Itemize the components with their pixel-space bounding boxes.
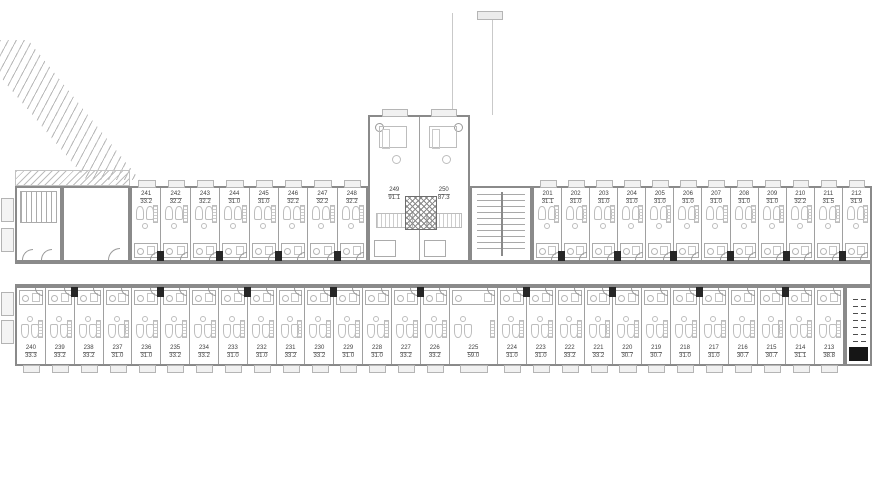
unit-label: 223 31.0 — [527, 345, 555, 360]
table-icon — [797, 223, 803, 229]
table-icon — [402, 316, 408, 322]
unit-number: 207 — [710, 191, 722, 199]
entrance-canopy — [15, 170, 130, 186]
wardrobe-icon — [610, 205, 615, 223]
unit-number: 211 — [823, 191, 835, 199]
unit-area: 31.0 — [731, 199, 758, 206]
unit-number: 238 — [83, 345, 95, 353]
bed-icon — [762, 324, 770, 338]
wardrobe-icon — [355, 320, 360, 338]
wing-bottom: 240 33.3 239 33.2 — [15, 286, 845, 366]
bed-icon — [396, 324, 404, 338]
unit-label: 206 31.0 — [674, 191, 701, 206]
table-icon — [85, 316, 91, 322]
unit-number: 245 — [258, 191, 270, 199]
bed-icon — [379, 126, 407, 148]
unit: 250 87.3 — [419, 117, 469, 260]
balcony — [1, 320, 14, 344]
unit-number: 250 — [438, 187, 450, 195]
unit: 203 31.0 — [589, 188, 617, 260]
unit-label: 215 30.7 — [758, 345, 786, 360]
unit: 248 32.2 — [337, 188, 366, 260]
site-line — [492, 13, 493, 115]
table-icon — [712, 223, 718, 229]
unit: 236 31.0 — [131, 288, 160, 364]
unit: 232 31.0 — [247, 288, 276, 364]
wardrobe-icon — [835, 205, 840, 223]
unit-label: 249 91.1 — [370, 187, 419, 202]
bed-icon — [763, 206, 771, 220]
bed-icon — [21, 324, 29, 338]
wardrobe-icon — [124, 320, 129, 338]
wardrobe-icon — [212, 205, 217, 223]
table-icon — [566, 316, 572, 322]
wardrobe-icon — [634, 320, 639, 338]
unit-area: 33.2 — [46, 353, 74, 360]
wardrobe-icon — [692, 320, 697, 338]
wardrobe-icon — [519, 320, 524, 338]
unit: 229 31.0 — [333, 288, 362, 364]
bed-icon — [338, 324, 346, 338]
unit-area: 32.2 — [161, 199, 189, 206]
unit-area: 33.2 — [305, 353, 333, 360]
unit-area: 31.0 — [104, 353, 132, 360]
bed-icon — [502, 324, 510, 338]
bed-icon — [617, 324, 625, 338]
unit-number: 223 — [535, 345, 547, 353]
unit-area: 33.2 — [421, 353, 449, 360]
unit-area: 31.0 — [759, 199, 786, 206]
bed-icon — [165, 324, 173, 338]
table-icon — [229, 316, 235, 322]
table-icon — [392, 155, 401, 164]
unit-label: 242 32.2 — [161, 191, 189, 206]
unit-label: 240 33.3 — [17, 345, 45, 360]
table-icon — [796, 316, 802, 322]
unit-number: 236 — [140, 345, 152, 353]
balcony — [1, 198, 14, 222]
unit-label: 202 31.0 — [562, 191, 589, 206]
table-icon — [27, 316, 33, 322]
unit-number: 216 — [737, 345, 749, 353]
table-icon — [171, 223, 177, 229]
unit-area: 32.2 — [308, 199, 336, 206]
unit-area: 59.0 — [450, 353, 497, 360]
unit: 201 31.1 — [534, 188, 561, 260]
unit-label: 244 31.0 — [220, 191, 248, 206]
wardrobe-icon — [271, 205, 276, 223]
bed-icon — [560, 324, 568, 338]
table-icon — [258, 316, 264, 322]
unit-area: 31.0 — [527, 353, 555, 360]
unit: 244 31.0 — [219, 188, 248, 260]
table-icon — [171, 316, 177, 322]
bed-icon — [425, 324, 433, 338]
unit-number: 246 — [287, 191, 299, 199]
table-icon — [508, 316, 514, 322]
unit-number: 213 — [823, 345, 835, 353]
entrance-vestibule — [15, 186, 62, 262]
unit: 202 31.0 — [561, 188, 589, 260]
table-icon — [595, 316, 601, 322]
unit-label: 210 32.2 — [787, 191, 814, 206]
table-icon — [287, 316, 293, 322]
bed-icon — [566, 206, 574, 220]
unit: 210 32.2 — [786, 188, 814, 260]
unit-area: 38.8 — [815, 353, 843, 360]
unit-number: 219 — [650, 345, 662, 353]
unit-label: 225 59.0 — [450, 345, 497, 360]
unit-number: 240 — [25, 345, 37, 353]
wardrobe-icon — [554, 205, 559, 223]
unit-label: 212 31.9 — [843, 191, 870, 206]
wardrobe-icon — [836, 320, 841, 338]
unit-area: 31.9 — [843, 199, 870, 206]
unit-number: 205 — [654, 191, 666, 199]
unit: 218 31.0 — [670, 288, 699, 364]
unit: 222 33.2 — [555, 288, 584, 364]
unit-label: 201 31.1 — [534, 191, 561, 206]
unit-area: 31.0 — [590, 199, 617, 206]
unit-label: 245 31.0 — [250, 191, 278, 206]
bed-icon — [281, 324, 289, 338]
bed-icon — [195, 206, 203, 220]
bed-icon — [464, 324, 472, 338]
table-icon — [114, 316, 120, 322]
entry-door-arc — [22, 249, 33, 260]
wardrobe-icon — [153, 205, 158, 223]
bed-icon — [252, 324, 260, 338]
unit-label: 216 30.7 — [729, 345, 757, 360]
table-icon — [656, 223, 662, 229]
site-line — [452, 13, 453, 115]
unit-label: 241 33.2 — [132, 191, 160, 206]
bed-icon — [194, 324, 202, 338]
wardrobe-icon — [807, 320, 812, 338]
unit-number: 209 — [766, 191, 778, 199]
unit-label: 217 31.0 — [700, 345, 728, 360]
table-icon — [684, 223, 690, 229]
unit-label: 236 31.0 — [132, 345, 160, 360]
unit-number: 233 — [227, 345, 239, 353]
unit-area: 31.1 — [786, 353, 814, 360]
bed-icon — [454, 324, 462, 338]
bed-icon — [819, 324, 827, 338]
unit: 241 33.2 — [132, 188, 160, 260]
bed-icon — [224, 206, 232, 220]
unit-label: 247 32.2 — [308, 191, 336, 206]
unit-area: 33.2 — [75, 353, 103, 360]
unit-label: 230 33.2 — [305, 345, 333, 360]
unit-area: 33.2 — [277, 353, 305, 360]
unit-label: 250 87.3 — [420, 187, 469, 202]
unit: 240 33.3 — [17, 288, 45, 364]
unit: 233 31.0 — [218, 288, 247, 364]
unit-number: 243 — [199, 191, 211, 199]
unit-area: 32.2 — [338, 199, 366, 206]
unit-number: 221 — [592, 345, 604, 353]
unit: 237 31.0 — [103, 288, 132, 364]
unit-area: 31.0 — [250, 199, 278, 206]
bed-icon — [735, 206, 743, 220]
unit: 212 31.9 — [842, 188, 870, 260]
wing-top-right: 201 31.1 202 31.0 — [532, 186, 872, 262]
bed-icon — [223, 324, 231, 338]
unit-label: 203 31.0 — [590, 191, 617, 206]
table-icon — [442, 155, 451, 164]
unit-area: 31.0 — [562, 199, 589, 206]
unit-area: 31.0 — [700, 353, 728, 360]
wardrobe-icon — [269, 320, 274, 338]
wardrobe-icon — [666, 205, 671, 223]
unit: 217 31.0 — [699, 288, 728, 364]
wardrobe-icon — [548, 320, 553, 338]
table-icon — [572, 223, 578, 229]
unit-number: 215 — [765, 345, 777, 353]
unit: 246 32.2 — [278, 188, 307, 260]
unit-label: 239 33.2 — [46, 345, 74, 360]
unit-area: 31.0 — [363, 353, 391, 360]
bed-icon — [819, 206, 827, 220]
unit: 228 31.0 — [362, 288, 391, 364]
wardrobe-icon — [96, 320, 101, 338]
wardrobe-icon — [240, 320, 245, 338]
bed-icon — [429, 126, 457, 148]
wardrobe-icon — [183, 205, 188, 223]
unit: 204 31.0 — [617, 188, 645, 260]
table-icon — [344, 316, 350, 322]
site-marker — [477, 11, 503, 20]
wardrobe-icon — [721, 320, 726, 338]
unit-label: 226 33.2 — [421, 345, 449, 360]
bed-icon — [650, 206, 658, 220]
center-suites: 249 91.1 250 87.3 — [368, 115, 470, 262]
unit: 226 33.2 — [420, 288, 449, 364]
unit-area: 33.3 — [17, 353, 45, 360]
unit: 207 31.0 — [701, 188, 729, 260]
wardrobe-icon — [582, 205, 587, 223]
unit-area: 33.2 — [132, 199, 160, 206]
unit-label: 214 31.1 — [786, 345, 814, 360]
wardrobe-icon — [490, 320, 495, 338]
unit-label: 211 31.5 — [815, 191, 842, 206]
unit: 216 30.7 — [728, 288, 757, 364]
unit-area: 33.2 — [556, 353, 584, 360]
corridor — [15, 262, 872, 286]
unit-number: 212 — [850, 191, 862, 199]
unit-label: 204 31.0 — [618, 191, 645, 206]
unit-label: 246 32.2 — [279, 191, 307, 206]
table-icon — [853, 223, 859, 229]
unit-label: 213 38.8 — [815, 345, 843, 360]
unit-number: 249 — [388, 187, 400, 195]
wardrobe-icon — [38, 320, 43, 338]
unit-area: 30.7 — [642, 353, 670, 360]
table-icon — [260, 223, 266, 229]
unit-number: 218 — [679, 345, 691, 353]
bed-icon — [531, 324, 539, 338]
unit-label: 222 33.2 — [556, 345, 584, 360]
unit-label: 229 31.0 — [334, 345, 362, 360]
unit-label: 218 31.0 — [671, 345, 699, 360]
bed-icon — [50, 324, 58, 338]
unit-label: 221 33.2 — [585, 345, 613, 360]
unit-label: 208 31.0 — [731, 191, 758, 206]
table-icon — [289, 223, 295, 229]
wardrobe-icon — [153, 320, 158, 338]
unit-label: 235 33.2 — [161, 345, 189, 360]
unit-number: 235 — [169, 345, 181, 353]
wardrobe-icon — [605, 320, 610, 338]
unit-label: 209 31.0 — [759, 191, 786, 206]
entry-door-arc — [41, 249, 52, 260]
unit-area: 33.2 — [392, 353, 420, 360]
table-icon — [460, 316, 466, 322]
table-icon — [318, 223, 324, 229]
unit: 215 30.7 — [757, 288, 786, 364]
wardrobe-icon — [807, 205, 812, 223]
unit-area: 31.0 — [334, 353, 362, 360]
unit: 225 59.0 — [449, 288, 497, 364]
unit-area: 31.0 — [702, 199, 729, 206]
unit-number: 229 — [342, 345, 354, 353]
unit-label: 224 31.0 — [498, 345, 526, 360]
table-icon — [201, 223, 207, 229]
unit-number: 241 — [140, 191, 152, 199]
unit-label: 205 31.0 — [646, 191, 673, 206]
unit-label: 228 31.0 — [363, 345, 391, 360]
wardrobe-icon — [442, 320, 447, 338]
wardrobe-icon — [663, 320, 668, 338]
table-icon — [768, 316, 774, 322]
unit-number: 202 — [570, 191, 582, 199]
wardrobe-icon — [778, 320, 783, 338]
unit: 214 31.1 — [785, 288, 814, 364]
unit-number: 239 — [54, 345, 66, 353]
unit: 243 32.2 — [190, 188, 219, 260]
unit-number: 232 — [256, 345, 268, 353]
unit-area: 31.0 — [674, 199, 701, 206]
bed-icon — [847, 206, 855, 220]
unit-area: 32.2 — [191, 199, 219, 206]
unit-number: 225 — [467, 345, 479, 353]
entrance-stairs — [20, 191, 57, 223]
unit-label: 219 30.7 — [642, 345, 670, 360]
unit-number: 201 — [542, 191, 554, 199]
unit-area: 31.0 — [618, 199, 645, 206]
bed-icon — [367, 324, 375, 338]
table-icon — [628, 223, 634, 229]
canopy-hatch — [0, 40, 140, 180]
unit: 238 33.2 — [74, 288, 103, 364]
unit: 213 38.8 — [814, 288, 843, 364]
lobby-door-arc — [108, 248, 120, 260]
wardrobe-icon — [694, 205, 699, 223]
unit-label: 238 33.2 — [75, 345, 103, 360]
unit: 249 91.1 — [370, 117, 419, 260]
table-icon — [769, 223, 775, 229]
unit-number: 228 — [371, 345, 383, 353]
bathroom — [424, 240, 446, 257]
table-icon — [825, 316, 831, 322]
table-icon — [142, 223, 148, 229]
unit-label: 232 31.0 — [248, 345, 276, 360]
unit-label: 207 31.0 — [702, 191, 729, 206]
unit: 221 33.2 — [584, 288, 613, 364]
unit-area: 31.0 — [132, 353, 160, 360]
bed-icon — [165, 206, 173, 220]
unit-area: 30.7 — [729, 353, 757, 360]
wardrobe-icon — [863, 205, 868, 223]
wardrobe-icon — [751, 205, 756, 223]
unit-label: 237 31.0 — [104, 345, 132, 360]
wardrobe-icon — [211, 320, 216, 338]
unit-area: 32.2 — [787, 199, 814, 206]
table-icon — [652, 316, 658, 322]
table-icon — [739, 316, 745, 322]
unit-label: 220 30.7 — [613, 345, 641, 360]
unit-number: 230 — [313, 345, 325, 353]
table-icon — [373, 316, 379, 322]
unit-area: 31.0 — [498, 353, 526, 360]
unit-number: 234 — [198, 345, 210, 353]
unit: 242 32.2 — [160, 188, 189, 260]
wardrobe-icon — [750, 320, 755, 338]
unit: 245 31.0 — [249, 188, 278, 260]
table-icon — [681, 316, 687, 322]
unit-number: 226 — [429, 345, 441, 353]
unit-area: 33.2 — [585, 353, 613, 360]
unit: 209 31.0 — [758, 188, 786, 260]
table-icon — [544, 223, 550, 229]
table-icon — [348, 223, 354, 229]
unit-area: 32.2 — [279, 199, 307, 206]
wardrobe-icon — [242, 205, 247, 223]
floor-plan: 241 33.2 242 32.2 — [0, 0, 880, 495]
bed-icon — [136, 324, 144, 338]
unit-label: 234 33.2 — [190, 345, 218, 360]
unit-number: 248 — [346, 191, 358, 199]
unit-number: 244 — [228, 191, 240, 199]
bed-icon — [254, 206, 262, 220]
wardrobe-icon — [326, 320, 331, 338]
bed-icon — [538, 206, 546, 220]
unit: 224 31.0 — [497, 288, 526, 364]
wardrobe-icon — [577, 320, 582, 338]
bed-icon — [136, 206, 144, 220]
table-icon — [537, 316, 543, 322]
unit-number: 220 — [621, 345, 633, 353]
bed-icon — [706, 206, 714, 220]
unit-number: 231 — [285, 345, 297, 353]
unit-label: 227 33.2 — [392, 345, 420, 360]
wardrobe-icon — [67, 320, 72, 338]
unit: 230 33.2 — [304, 288, 333, 364]
unit: 239 33.2 — [45, 288, 74, 364]
unit-number: 206 — [682, 191, 694, 199]
wing-top-left: 241 33.2 242 32.2 — [130, 186, 368, 262]
unit-area: 31.0 — [646, 199, 673, 206]
bed-icon — [704, 324, 712, 338]
bed-icon — [342, 206, 350, 220]
table-icon — [431, 316, 437, 322]
entry-door-arc — [691, 252, 699, 260]
unit-area: 33.2 — [190, 353, 218, 360]
unit-number: 214 — [794, 345, 806, 353]
unit-area: 31.0 — [220, 199, 248, 206]
unit-area: 30.7 — [758, 353, 786, 360]
unit-number: 208 — [738, 191, 750, 199]
